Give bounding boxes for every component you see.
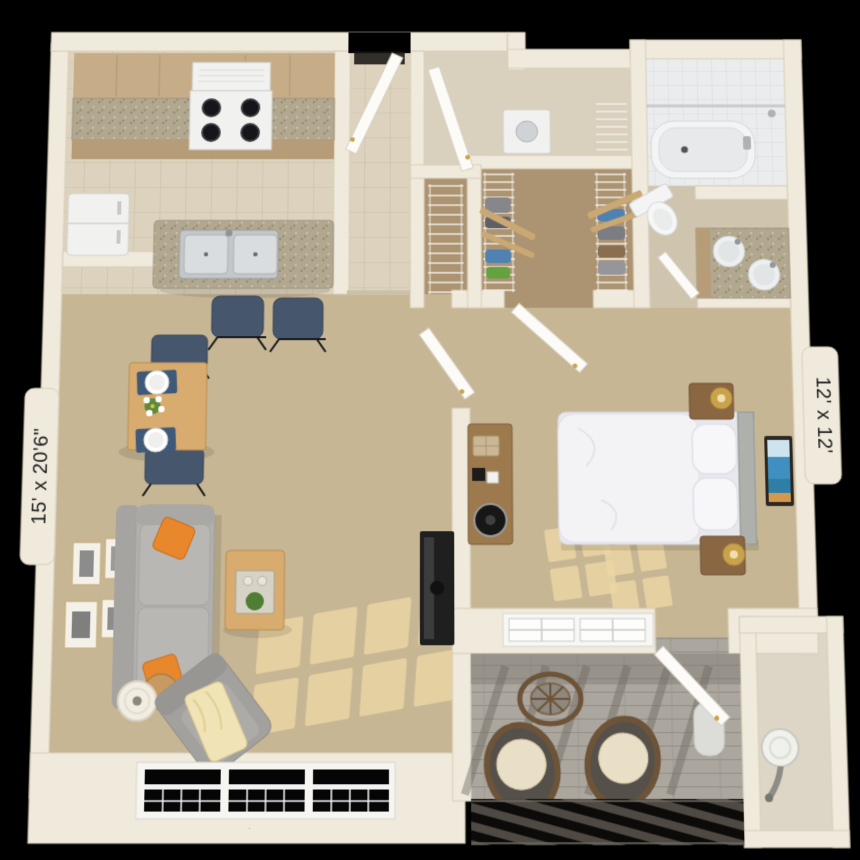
- window-pane: [313, 770, 389, 812]
- balcony-railing: [471, 799, 744, 845]
- nightstand: [689, 383, 734, 419]
- bathtub: [651, 121, 756, 178]
- dimension-tab-living: 15' x 20'6": [20, 388, 59, 564]
- water-heater: [761, 729, 799, 767]
- island-double-sink: [179, 230, 278, 279]
- desk: [468, 424, 513, 544]
- stove: [189, 91, 272, 150]
- double-sink-vanity: [696, 228, 790, 298]
- headboard: [738, 412, 757, 544]
- bed: [558, 412, 759, 550]
- dimension-tab-bedroom: 12' x 12': [802, 347, 842, 484]
- range-hood: [192, 63, 270, 91]
- living-room-window: [136, 762, 396, 819]
- dimension-label-living: 15' x 20'6": [28, 428, 53, 525]
- dining-table: [127, 363, 207, 453]
- tv: [420, 531, 455, 645]
- wall-art: [764, 436, 794, 506]
- balcony: [461, 646, 745, 845]
- bedroom-window: [503, 613, 654, 646]
- floor-plan-stage: 15' x 20'6" 12' x 12': [0, 0, 860, 860]
- duvet: [558, 414, 700, 542]
- pillow: [692, 424, 737, 474]
- floor-plan-image: 15' x 20'6" 12' x 12': [0, 16, 860, 860]
- pillow: [693, 478, 738, 530]
- entry-doorway-void: [348, 32, 410, 53]
- nightstand: [700, 536, 745, 575]
- window-pane: [228, 770, 305, 812]
- window-pane: [144, 770, 221, 812]
- dimension-label-bedroom: 12' x 12': [811, 377, 836, 454]
- floor-lamp: [117, 681, 157, 720]
- coffee-table: [223, 550, 293, 638]
